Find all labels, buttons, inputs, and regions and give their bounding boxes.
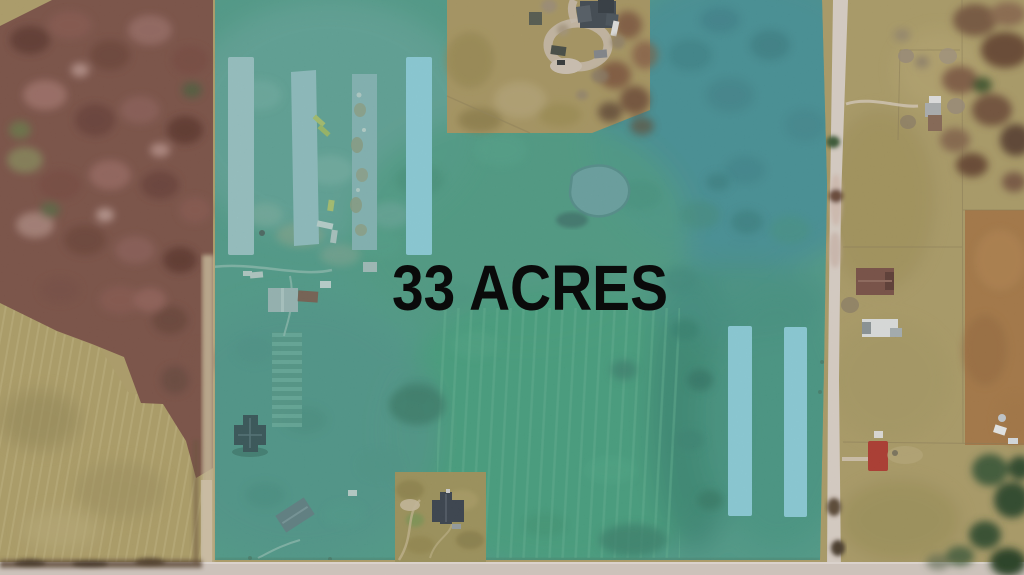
aerial-listing-photo: 33 ACRES — [0, 0, 1024, 575]
acreage-label: 33 ACRES — [392, 252, 668, 324]
